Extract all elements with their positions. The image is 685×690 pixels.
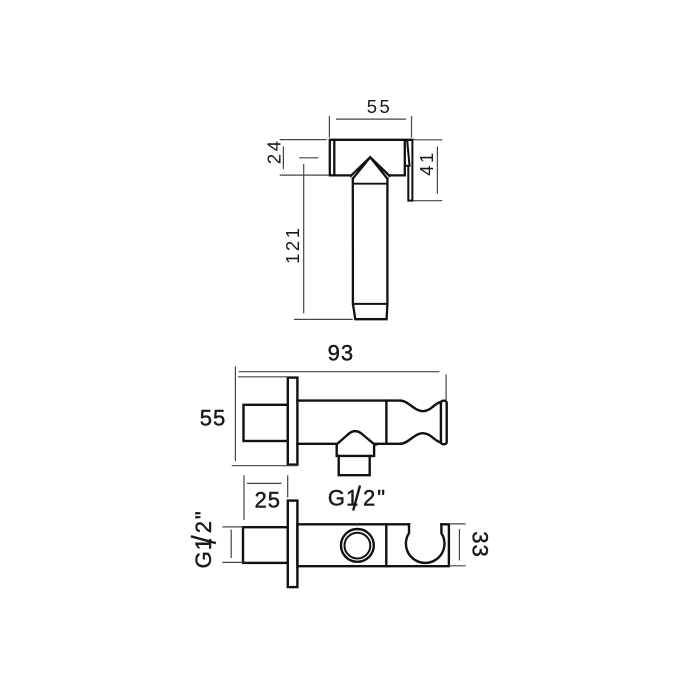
svg-text:2": 2" xyxy=(191,509,216,533)
svg-text:121: 121 xyxy=(282,226,303,264)
svg-text:41: 41 xyxy=(416,150,437,176)
svg-text:55: 55 xyxy=(200,405,226,430)
svg-text:33: 33 xyxy=(468,531,493,557)
svg-text:25: 25 xyxy=(255,488,281,513)
svg-text:2": 2" xyxy=(363,485,387,510)
svg-text:55: 55 xyxy=(367,96,393,117)
svg-text:93: 93 xyxy=(328,340,354,365)
svg-text:24: 24 xyxy=(264,139,285,165)
